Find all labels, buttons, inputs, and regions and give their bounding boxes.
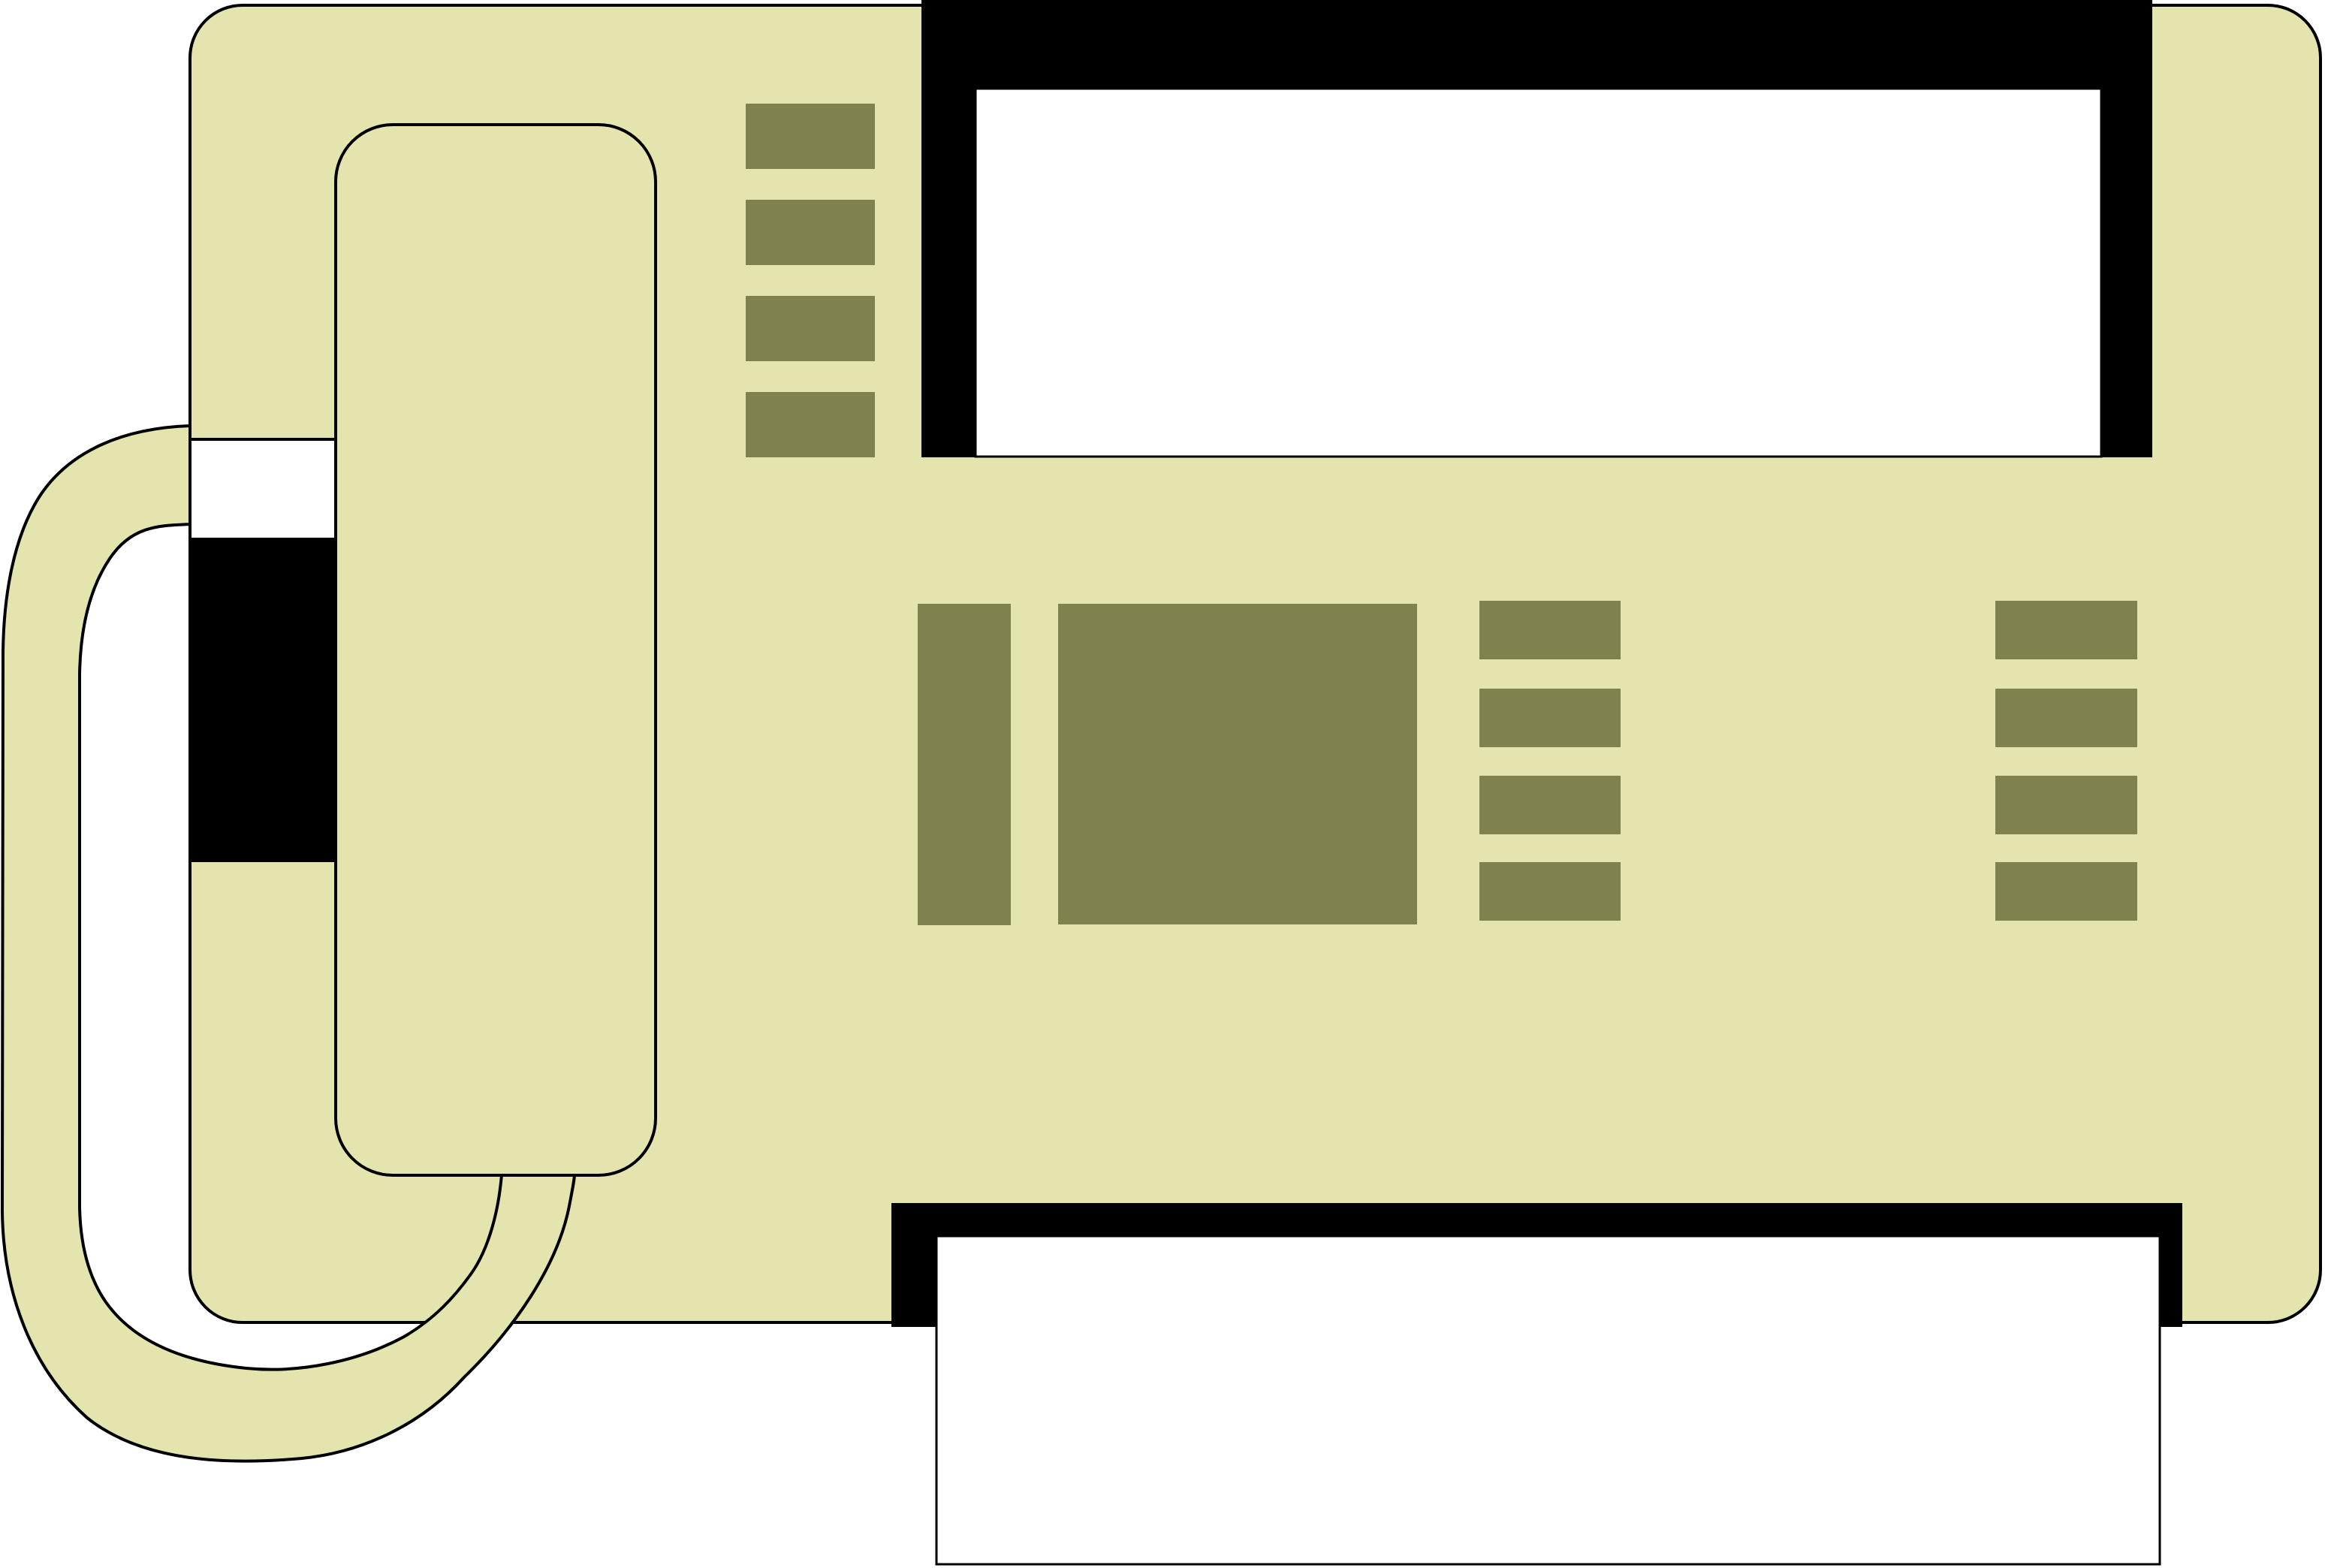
memory-button-3 [1995, 776, 2137, 834]
cord-connector-slot [190, 539, 340, 861]
paper-guide-bar [918, 604, 1011, 925]
handset [336, 125, 656, 1175]
memory-button-4 [1995, 862, 2137, 921]
fax-machine-illustration [0, 0, 2325, 1568]
display-screen [976, 89, 2101, 457]
function-button-4 [746, 392, 875, 457]
function-button-1 [746, 104, 875, 169]
speed-dial-button-3 [1479, 776, 1621, 834]
cord-connector-plate [190, 439, 340, 539]
memory-button-2 [1995, 689, 2137, 747]
paper-sheet [936, 1236, 2160, 1564]
memory-button-1 [1995, 601, 2137, 659]
function-button-2 [746, 200, 875, 265]
speed-dial-button-2 [1479, 689, 1621, 747]
speed-dial-button-4 [1479, 862, 1621, 921]
function-button-3 [746, 296, 875, 361]
fax-machine-canvas [0, 0, 2325, 1568]
speed-dial-button-1 [1479, 601, 1621, 659]
keypad-panel [1058, 604, 1417, 924]
